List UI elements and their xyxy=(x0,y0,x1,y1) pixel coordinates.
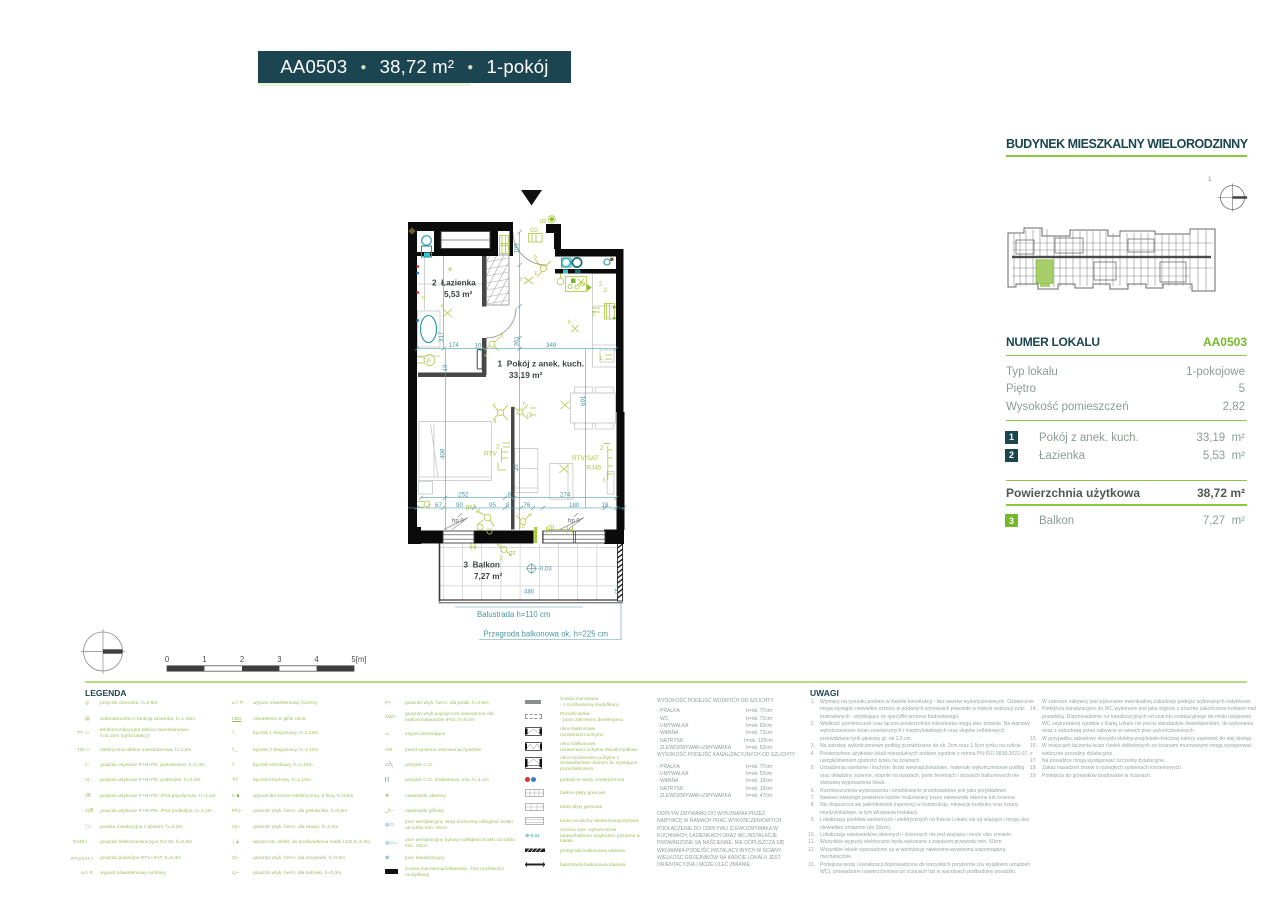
svg-text:(2: (2 xyxy=(527,413,533,419)
svg-text:95: 95 xyxy=(489,502,496,509)
svg-text:1: 1 xyxy=(1208,176,1212,183)
svg-text:349: 349 xyxy=(546,342,557,349)
svg-text:10: 10 xyxy=(475,343,482,350)
svg-text:317: 317 xyxy=(438,331,445,342)
svg-text:180: 180 xyxy=(569,502,580,509)
svg-text:4: 4 xyxy=(314,655,319,664)
svg-text:P: P xyxy=(427,358,431,365)
svg-text:1: 1 xyxy=(202,655,206,664)
svg-text:33,19 m²: 33,19 m² xyxy=(509,370,543,380)
svg-text:RJ45: RJ45 xyxy=(587,465,603,472)
svg-text:5: 5 xyxy=(615,589,619,596)
svg-text:e: e xyxy=(484,353,487,359)
svg-text:Przegroda balkonowa ok. h=225: Przegroda balkonowa ok. h=225 cm xyxy=(484,630,609,639)
svg-text:2: 2 xyxy=(427,505,430,511)
svg-text:3 Balkon: 3 Balkon xyxy=(464,561,500,570)
svg-text:67: 67 xyxy=(435,502,442,509)
svg-text:18,: 18, xyxy=(602,502,611,509)
svg-text:8: 8 xyxy=(506,502,510,509)
svg-text:90: 90 xyxy=(456,502,463,509)
svg-text:z1: z1 xyxy=(476,509,482,515)
svg-text:2: 2 xyxy=(496,444,500,451)
svg-text:e: e xyxy=(441,304,444,310)
svg-text:8: 8 xyxy=(508,492,512,499)
svg-text:L: L xyxy=(600,356,604,362)
svg-text:Balustrada h=110 cm: Balustrada h=110 cm xyxy=(477,610,550,619)
svg-text:d: d xyxy=(501,334,504,340)
svg-text:2: 2 xyxy=(599,282,603,288)
svg-text:(2: (2 xyxy=(520,524,525,530)
svg-text:3: 3 xyxy=(277,655,281,664)
svg-text:1 Pokój z anek. kuch.: 1 Pokój z anek. kuch. xyxy=(498,359,585,369)
svg-text:2 Łazienka: 2 Łazienka xyxy=(432,279,476,288)
svg-text:f: f xyxy=(494,403,496,409)
svg-text:d: d xyxy=(422,295,425,301)
svg-text:h: h xyxy=(523,402,526,408)
svg-text:408: 408 xyxy=(439,448,446,459)
svg-text:dz: dz xyxy=(540,218,547,225)
svg-text:gz: gz xyxy=(509,550,516,557)
svg-text:b: b xyxy=(568,320,571,326)
svg-text:5: 5 xyxy=(603,478,606,484)
svg-text:691: 691 xyxy=(580,395,587,406)
svg-text:274: 274 xyxy=(560,492,571,499)
svg-text:0: 0 xyxy=(165,655,170,664)
svg-text:361: 361 xyxy=(514,336,521,347)
svg-text:2: 2 xyxy=(604,288,608,294)
svg-text:O2: O2 xyxy=(530,228,539,234)
svg-text:2: 2 xyxy=(240,655,244,664)
svg-text:25: 25 xyxy=(513,464,520,471)
svg-text:109: 109 xyxy=(514,243,521,254)
svg-text:g: g xyxy=(494,418,497,424)
svg-text:Z: Z xyxy=(592,312,596,318)
svg-text:480: 480 xyxy=(524,589,535,596)
svg-text:10: 10 xyxy=(442,364,449,371)
svg-text:2: 2 xyxy=(600,445,604,452)
svg-text:5[m]: 5[m] xyxy=(351,655,366,664)
svg-text:z: z xyxy=(530,512,533,518)
svg-text:b: b xyxy=(534,255,537,261)
svg-text:7,27 m²: 7,27 m² xyxy=(474,572,502,581)
svg-text:-0,03: -0,03 xyxy=(538,567,552,573)
svg-text:5,53 m²: 5,53 m² xyxy=(444,290,472,299)
svg-text:Z: Z xyxy=(500,556,503,562)
svg-text:RTV: RTV xyxy=(484,451,498,458)
svg-text:252: 252 xyxy=(458,492,469,499)
svg-text:174: 174 xyxy=(449,342,460,349)
svg-text:76: 76 xyxy=(524,502,531,509)
